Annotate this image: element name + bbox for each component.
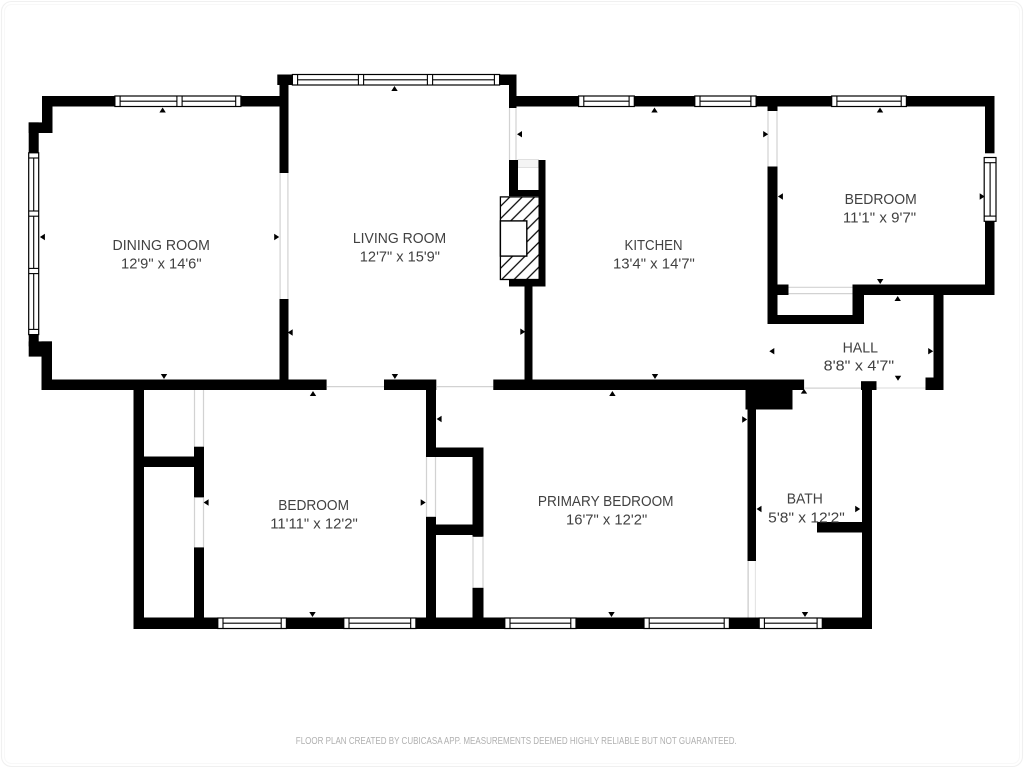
svg-text:BATH: BATH — [787, 491, 823, 508]
svg-text:HALL: HALL — [843, 339, 878, 356]
svg-text:BEDROOM: BEDROOM — [845, 191, 917, 208]
svg-text:16'7" x 12'2": 16'7" x 12'2" — [566, 511, 647, 528]
svg-text:12'9" x 14'6": 12'9" x 14'6" — [121, 255, 202, 272]
svg-text:11'1" x 9'7": 11'1" x 9'7" — [843, 209, 916, 226]
svg-text:12'7" x 15'9": 12'7" x 15'9" — [360, 248, 440, 265]
svg-text:PRIMARY BEDROOM: PRIMARY BEDROOM — [538, 493, 674, 510]
svg-text:FLOOR PLAN CREATED BY CUBICASA: FLOOR PLAN CREATED BY CUBICASA APP. MEAS… — [296, 736, 737, 747]
svg-text:LIVING ROOM: LIVING ROOM — [353, 230, 446, 247]
svg-text:BEDROOM: BEDROOM — [278, 497, 349, 514]
svg-text:5'8" x 12'2": 5'8" x 12'2" — [768, 509, 845, 526]
svg-text:DINING ROOM: DINING ROOM — [113, 237, 210, 254]
svg-text:KITCHEN: KITCHEN — [625, 237, 683, 254]
svg-text:8'8" x 4'7": 8'8" x 4'7" — [824, 358, 895, 375]
svg-text:13'4" x 14'7": 13'4" x 14'7" — [613, 255, 695, 272]
svg-text:11'11" x 12'2": 11'11" x 12'2" — [270, 515, 358, 532]
